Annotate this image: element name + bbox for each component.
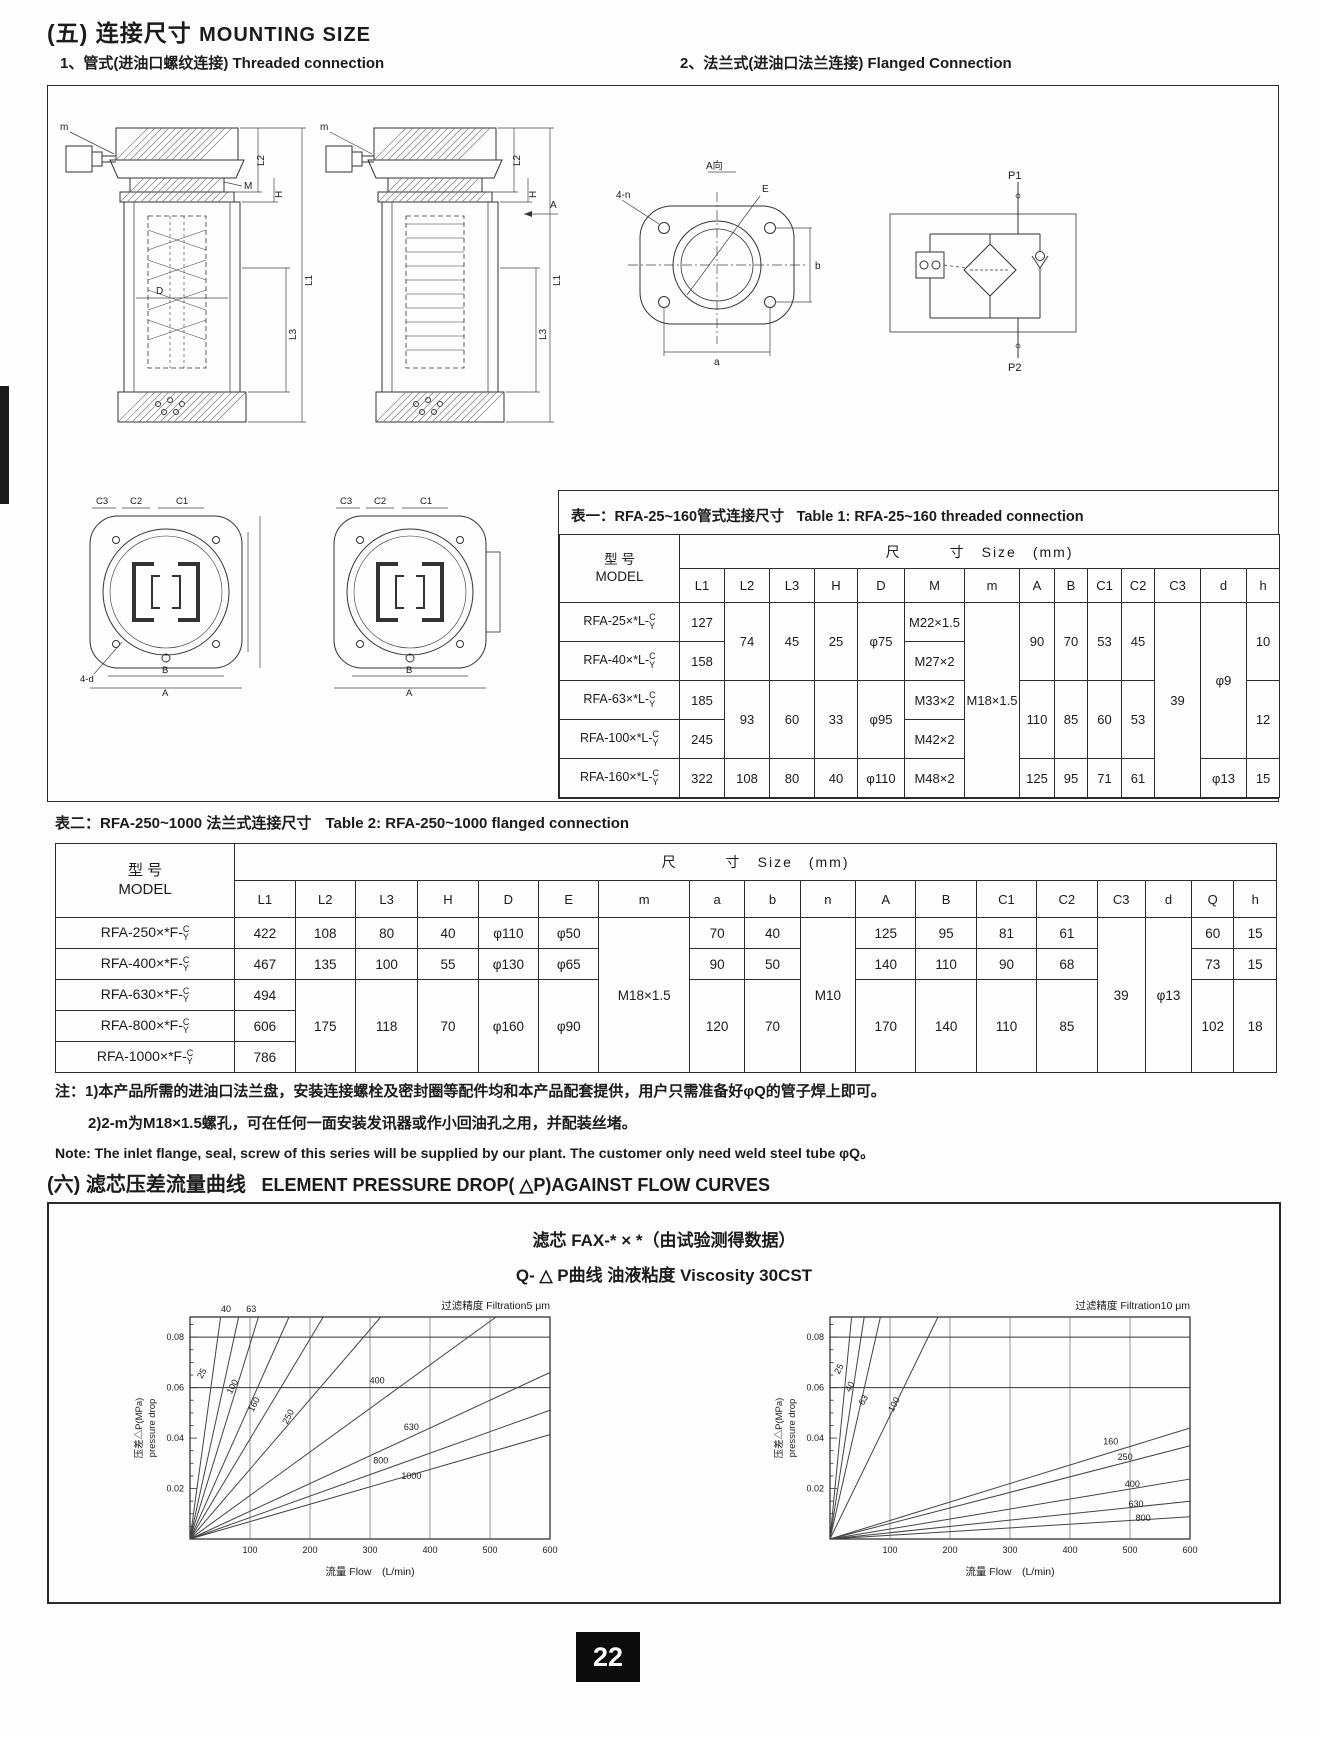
curve-label-100: 100 [224,1378,240,1396]
dim-label-a: a [714,357,720,368]
bottom-view-1: C3 C2 C1 4-d B A [78,492,268,697]
filter-drawing-flanged: m A L2 H L1 L3 [318,118,563,478]
curve-400 [190,1317,496,1539]
curve-label-800: 800 [373,1456,388,1466]
table2-header-row2: L1L2 L3H DE ma bn AB C1C2 C3d Qh [56,881,1277,918]
table2-title-en: Table 2: RFA-250~1000 flanged connection [326,815,630,832]
table2-title-cn: 表二：RFA-250~1000 法兰式连接尺寸 [55,815,311,832]
port-label-P1: P1 [1008,170,1021,182]
top-curve-label-40: 40 [221,1304,231,1314]
x-tick-label: 400 [1062,1545,1077,1555]
dim-label-L1: L1 [304,274,315,286]
note-line2: 2)2-m为M18×1.5螺孔，可在任何一面安装发讯器或作小回油孔之用，并配装丝… [88,1112,637,1133]
hatch-lines [376,392,504,422]
section6-title: (六) 滤芯压差流量曲线 ELEMENT PRESSURE DROP( △P)A… [47,1168,770,1197]
chart-header-1: 滤芯 FAX-* × *（由试验测得数据） [49,1226,1279,1251]
y-tick-label: 0.06 [166,1383,184,1393]
x-tick-label: 100 [882,1545,897,1555]
x-tick-label: 100 [242,1545,257,1555]
x-tick-label: 400 [422,1545,437,1555]
table2-row-250: RFA-250×*F-CY 422 108 80 40 φ110 φ50 M18… [56,918,1277,949]
subtitle-flanged: 2、法兰式(进油口法兰连接) Flanged Connection [680,52,1012,73]
table2-header-row1: 型 号MODEL 尺 寸 Size (mm) [56,844,1277,881]
y-tick-label: 0.08 [166,1332,184,1342]
dim-label-Ab-bottom: A [406,688,413,697]
dim-label-A-bottom: A [162,688,169,697]
curve-label-800: 800 [1136,1513,1151,1523]
x-tick-label: 200 [302,1545,317,1555]
y-axis-label-cn: 压差△P(MPa) [133,1398,145,1459]
y-tick-label: 0.02 [806,1484,824,1494]
curve-label-63: 63 [857,1393,871,1407]
section-title: (五) 连接尺寸 MOUNTING SIZE [47,14,371,48]
dim-label-C1: C1 [176,496,188,507]
dim-label-L3b: L3 [538,328,549,340]
x-tick-label: 500 [482,1545,497,1555]
curve-label-25: 25 [832,1362,846,1376]
table1: 型 号MODEL 尺 寸 Size (mm) L1L2 L3H DM mA BC… [559,534,1280,798]
table1-row-25: RFA-25×*L-CY 127 74 45 25 φ75 M22×1.5 M1… [560,603,1280,642]
curve-63 [190,1317,258,1539]
y-axis-label-en: pressure drop [787,1399,798,1458]
chart-plot: 0.020.040.060.08100200300400500600254063… [773,1299,1198,1578]
y-tick-label: 0.04 [166,1433,184,1443]
dim-label-H: H [274,191,285,198]
dim-label-m: m [60,122,68,133]
hatch-lines [116,128,232,160]
curve-label-160: 160 [1103,1437,1118,1447]
dim-label-M: M [244,181,252,192]
table1-title-cn: 表一：RFA-25~160管式连接尺寸 [571,509,784,525]
hydraulic-schematic: P1 P2 [862,168,1107,378]
hatch-lines [374,128,490,160]
dim-label-L3: L3 [288,328,299,340]
chart-filtration-5um: 0.020.040.060.08100200300400500600251001… [95,1287,595,1597]
x-axis-label: 流量 Flow (L/min) [325,1565,414,1578]
table1-title: 表一：RFA-25~160管式连接尺寸 Table 1: RFA-25~160 … [559,491,1278,534]
curve-63 [830,1317,880,1539]
binding-edge-tab [0,386,9,504]
curve-label-630: 630 [1128,1499,1143,1509]
dim-label-4n: 4-n [616,190,630,201]
dim-label-4d: 4-d [80,674,94,685]
x-tick-label: 300 [1002,1545,1017,1555]
dim-label-L2b: L2 [512,154,523,166]
dim-label-C3b: C3 [340,496,352,507]
flange-view: A向 4-n E b a [612,158,827,373]
hatch-lines [118,392,246,422]
dim-label-E: E [762,184,769,195]
dim-label-D: D [156,286,163,297]
x-tick-label: 600 [542,1545,557,1555]
hatch-lines [388,178,479,192]
dim-label-C2: C2 [130,496,142,507]
curve-label-25: 25 [195,1367,209,1381]
curve-label-400: 400 [1125,1479,1140,1489]
filter-drawing-threaded: m M L2 H D L1 L3 [58,118,318,478]
y-axis-label-cn: 压差△P(MPa) [773,1398,785,1459]
note-line3: Note: The inlet flange, seal, screw of t… [55,1143,874,1163]
x-axis-label: 流量 Flow (L/min) [965,1565,1054,1578]
dim-label-C3: C3 [96,496,108,507]
table1-header-row1: 型 号MODEL 尺 寸 Size (mm) [560,535,1280,569]
dim-label-Hb: H [528,191,539,198]
section-title-cn: (五) 连接尺寸 [47,20,192,46]
page-number: 22 [576,1632,640,1682]
y-tick-label: 0.08 [806,1332,824,1342]
dim-label-Bb-bottom: B [406,665,412,676]
curve-25 [830,1317,852,1539]
dim-label-m2: m [320,122,328,133]
subtitle-threaded: 1、管式(进油口螺纹连接) Threaded connection [60,52,384,73]
curve-label-160: 160 [246,1395,262,1413]
filtration-caption: 过滤精度 Filtration5 μm [441,1299,550,1312]
hatch-lines [378,192,486,202]
note-line1: 注：1)本产品所需的进油口法兰盘，安装连接螺栓及密封圈等配件均和本产品配套提供，… [55,1080,886,1101]
x-tick-label: 500 [1122,1545,1137,1555]
dim-label-L2: L2 [256,154,267,166]
y-tick-label: 0.04 [806,1433,824,1443]
table1-title-en: Table 1: RFA-25~160 threaded connection [797,509,1084,525]
section-arrow-A: A [550,200,557,211]
curve-label-630: 630 [404,1422,419,1432]
curve-label-250: 250 [280,1408,296,1426]
dim-label-B-bottom: B [162,665,168,676]
chart-header-2: Q- △ P曲线 油液粘度 Viscosity 30CST [49,1261,1279,1286]
datasheet-page: (五) 连接尺寸 MOUNTING SIZE 1、管式(进油口螺纹连接) Thr… [0,0,1320,1737]
curve-40 [190,1317,239,1539]
filtration-caption: 过滤精度 Filtration10 μm [1075,1299,1190,1312]
curve-40 [830,1317,864,1539]
y-tick-label: 0.02 [166,1484,184,1494]
curve-label-100: 100 [886,1395,902,1413]
table2-title: 表二：RFA-250~1000 法兰式连接尺寸 Table 2: RFA-250… [55,812,629,833]
curve-250 [190,1317,381,1539]
section-title-en: MOUNTING SIZE [199,24,371,46]
section6-title-cn: (六) 滤芯压差流量曲线 [47,1174,246,1196]
curve-label-250: 250 [1118,1452,1133,1462]
dim-label-C2b: C2 [374,496,386,507]
top-curve-label-63: 63 [246,1304,256,1314]
x-tick-label: 200 [942,1545,957,1555]
table1-block: 表一：RFA-25~160管式连接尺寸 Table 1: RFA-25~160 … [558,490,1279,799]
dim-label-b: b [815,261,821,272]
dim-label-C1b: C1 [420,496,432,507]
hatch-lines [130,178,221,192]
y-axis-label-en: pressure drop [147,1399,158,1458]
curve-100 [830,1317,938,1539]
chart-filtration-10um: 0.020.040.060.08100200300400500600254063… [735,1287,1235,1597]
section6-title-en: ELEMENT PRESSURE DROP( △P)AGAINST FLOW C… [261,1175,770,1195]
table2: 型 号MODEL 尺 寸 Size (mm) L1L2 L3H DE ma bn… [55,843,1277,1073]
curve-label-400: 400 [370,1376,385,1386]
x-tick-label: 600 [1182,1545,1197,1555]
bottom-view-2: C3 C2 C1 B A [322,492,512,697]
x-tick-label: 300 [362,1545,377,1555]
view-label-A: A向 [706,159,723,172]
port-label-P2: P2 [1008,362,1021,374]
chart-plot: 0.020.040.060.08100200300400500600251001… [133,1299,558,1578]
hatch-lines [120,192,228,202]
curve-label-1000: 1000 [401,1471,421,1481]
dim-label-L1b: L1 [552,274,563,286]
y-tick-label: 0.06 [806,1383,824,1393]
